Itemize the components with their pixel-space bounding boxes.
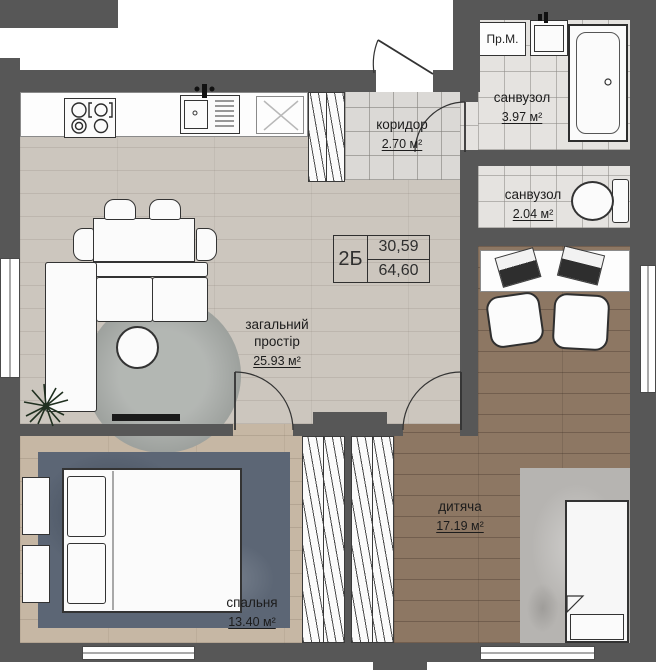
nightstand <box>22 545 50 603</box>
wall-top-bathroom <box>453 0 656 20</box>
stove <box>64 98 116 138</box>
wall-bedroom-left-segment <box>20 424 233 436</box>
bathtub-inner <box>576 32 620 134</box>
room-name: загальний простір <box>222 317 332 351</box>
unit-info-box: 2Б 30,59 64,60 <box>333 235 430 283</box>
office-chair <box>485 290 546 349</box>
bed-blanket-line <box>112 471 114 610</box>
tv <box>112 414 180 421</box>
window-bottom-kids <box>480 646 595 660</box>
room-name: коридор <box>352 117 452 134</box>
label-living-room: загальний простір 25.93 м² <box>222 317 332 371</box>
entry-door <box>373 40 433 74</box>
label-kids-room: дитяча 17.19 м² <box>408 499 512 536</box>
label-bathroom-top: санвузол 3.97 м² <box>468 90 576 127</box>
unit-living-area: 30,59 <box>368 236 429 260</box>
wall-wardrobe-gap <box>345 436 351 643</box>
room-name: дитяча <box>408 499 512 516</box>
room-area: 13.40 м² <box>228 615 276 631</box>
room-name: санвузол <box>481 187 585 204</box>
wall-top-left-band <box>0 0 118 28</box>
wardrobe-bedroom <box>302 436 345 643</box>
bathroom-sink-basin <box>534 25 564 52</box>
unit-areas: 30,59 64,60 <box>368 236 429 282</box>
room-area: 25.93 м² <box>253 354 301 370</box>
toilet-tank <box>612 179 629 223</box>
pillow <box>67 543 106 604</box>
pillow <box>67 476 106 537</box>
wall-top-kitchen <box>0 70 376 92</box>
wall-wardrobe-chunk <box>313 412 387 426</box>
kitchen-cabinet <box>256 96 304 134</box>
washing-machine-label: Пр.М. <box>487 32 519 46</box>
label-bedroom: спальня 13.40 м² <box>198 595 306 632</box>
room-name: спальня <box>198 595 306 612</box>
room-area: 3.97 м² <box>502 110 543 126</box>
window-bottom-bedroom <box>82 646 195 660</box>
single-bed-pillow <box>570 614 624 640</box>
office-chair <box>552 293 611 352</box>
nightstand <box>22 477 50 535</box>
wall-bottom-protrusion <box>373 662 427 670</box>
unit-total-area: 64,60 <box>368 260 429 283</box>
label-corridor: коридор 2.70 м² <box>352 117 452 154</box>
label-bathroom-small: санвузол 2.04 м² <box>481 187 585 224</box>
floor-plan: Пр.М. <box>0 0 656 670</box>
room-area: 2.70 м² <box>382 137 423 153</box>
sofa-seat <box>152 277 208 322</box>
wardrobe-corridor <box>308 92 345 182</box>
wall-bathroom-study-divider <box>460 228 630 246</box>
washing-machine: Пр.М. <box>479 22 526 56</box>
dining-table <box>93 218 195 262</box>
dining-chair <box>104 199 136 220</box>
wall-living-right-lower <box>460 152 478 436</box>
room-name: санвузол <box>468 90 576 107</box>
kitchen-sink-basin <box>184 100 208 129</box>
unit-type-label: 2Б <box>334 236 368 282</box>
wall-bathroom-divider <box>460 150 630 166</box>
room-area: 17.19 м² <box>436 519 484 535</box>
dining-chair <box>149 199 181 220</box>
room-area: 2.04 м² <box>513 207 554 223</box>
sofa-seat <box>96 277 153 322</box>
window-left <box>0 258 20 378</box>
wardrobe-kids <box>351 436 394 643</box>
dining-chair <box>73 228 94 261</box>
window-right <box>640 265 656 393</box>
sofa-chaise <box>45 262 97 412</box>
coffee-table <box>116 326 159 369</box>
dining-chair <box>196 228 217 261</box>
